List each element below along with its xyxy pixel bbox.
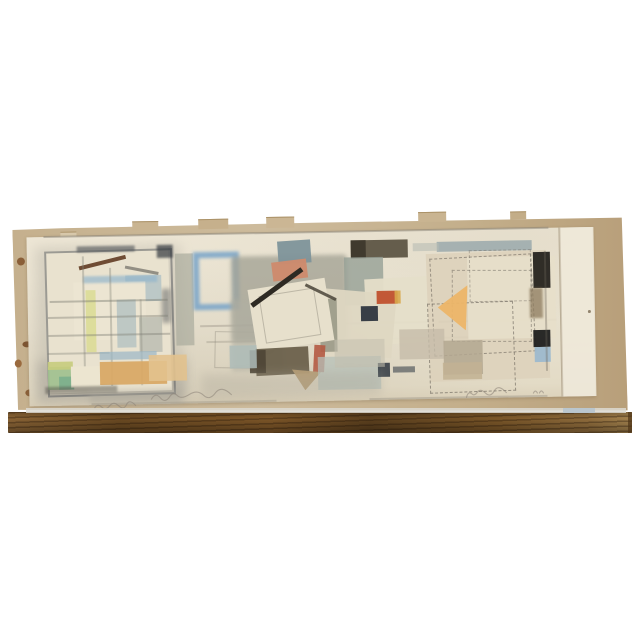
umber-rect-dark bbox=[351, 240, 366, 258]
cream-step bbox=[71, 366, 101, 388]
grayblue-bar-faint bbox=[413, 243, 439, 251]
left-panel-top-smudge bbox=[77, 245, 135, 252]
bluegray-block-a bbox=[229, 345, 256, 368]
photo-canvas bbox=[0, 0, 640, 640]
bluegray-column bbox=[117, 299, 137, 347]
inscription-date-mark bbox=[531, 388, 545, 396]
pencil-dot bbox=[588, 310, 591, 313]
tan-block-light bbox=[149, 354, 187, 381]
red-block-gold-edge bbox=[395, 291, 401, 304]
left-panel-corner-smudge bbox=[157, 245, 173, 258]
navy-dash-b bbox=[393, 366, 415, 372]
ledge-highlight-blue bbox=[563, 408, 595, 413]
left-panel-right-smudge bbox=[161, 289, 171, 323]
bottom-line-right bbox=[369, 395, 547, 400]
house-blue-eave bbox=[83, 275, 157, 283]
beige-block-a bbox=[399, 329, 445, 360]
sheet-edge-line bbox=[558, 228, 563, 397]
mid-low-wash bbox=[334, 339, 385, 368]
painted-shapes-layer bbox=[0, 0, 640, 640]
gray-vstrip bbox=[175, 253, 195, 345]
lightblue-square bbox=[535, 347, 551, 362]
artwork bbox=[0, 0, 640, 640]
black-block bbox=[533, 252, 551, 288]
inscription-bottom-center bbox=[149, 390, 235, 404]
brown-drip bbox=[529, 288, 543, 318]
tan-block-low bbox=[443, 362, 482, 380]
navy-patch bbox=[361, 306, 378, 321]
ledge-highlight bbox=[26, 408, 626, 413]
top-border-line bbox=[43, 227, 548, 238]
yellowgreen-cap bbox=[48, 362, 73, 370]
inscription-signature-right bbox=[465, 389, 507, 401]
sketch-square-d bbox=[469, 249, 532, 302]
black-square bbox=[533, 330, 550, 347]
